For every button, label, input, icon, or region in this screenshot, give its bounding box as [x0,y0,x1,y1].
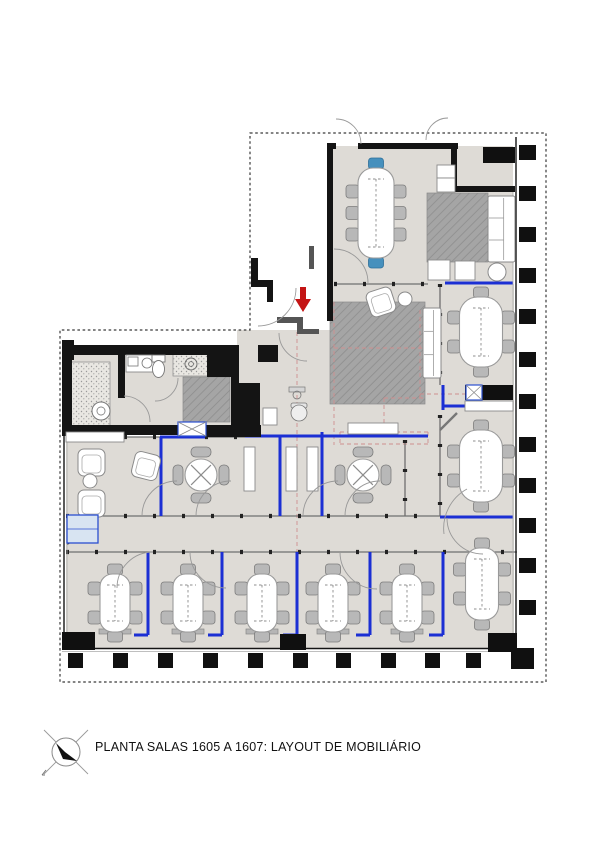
wall [62,352,72,436]
sink-basin [128,357,138,366]
chair [335,465,345,485]
chair [498,563,511,576]
north-arrow-icon [40,726,92,778]
chair [326,564,341,575]
sofa [423,308,441,378]
low-wall [309,246,314,269]
column [519,394,536,409]
cabinet-dark [62,632,95,650]
chair [235,611,248,624]
chair [181,564,196,575]
chair [369,158,384,169]
column [519,268,536,283]
chair [255,631,270,642]
chair [498,592,511,605]
chair [346,207,359,220]
chair [306,582,319,595]
cabinet-dark [488,633,517,652]
arrow-head [295,299,311,312]
rug [183,377,230,422]
column [519,437,536,452]
chair [161,582,174,595]
chair [88,611,101,624]
floor-plan [0,0,610,710]
cabinet [307,447,318,491]
chair [381,465,391,485]
chair [347,611,360,624]
chair [448,311,461,324]
side-table [83,474,97,488]
sofa-body [488,196,515,262]
chair [448,445,461,458]
architectural-drawing-sheet: PLANTA SALAS 1605 A 1607: LAYOUT DE MOBI… [0,0,610,862]
side-table [488,263,506,281]
floor-area [148,375,184,426]
chair [202,611,215,624]
chair [173,465,183,485]
wall [358,143,458,149]
drum-fixture [92,402,110,420]
chair-seat [291,405,307,421]
cabinet [263,408,277,425]
column [381,653,396,668]
chair [474,366,489,377]
chair [502,340,515,353]
drawing-title: PLANTA SALAS 1605 A 1607: LAYOUT DE MOBI… [95,740,421,754]
chair [474,287,489,298]
chair [448,340,461,353]
sofa-body [423,308,441,378]
column [293,653,308,668]
wall [207,350,234,377]
meeting-table [247,574,277,632]
chair [454,592,467,605]
column [519,478,536,493]
chair [326,631,341,642]
chair [129,611,142,624]
toilet-bowl [153,361,165,378]
chair [380,611,393,624]
entrance-arrow [295,287,311,312]
chair [393,228,406,241]
rug [427,193,488,262]
chair [421,582,434,595]
arrow-shaft [300,287,306,299]
column [519,352,536,367]
chair [235,582,248,595]
cabinet [244,447,255,491]
chair [346,185,359,198]
chair [346,228,359,241]
chair [475,619,490,630]
cabinet [437,165,455,178]
column [113,653,128,668]
column [158,653,173,668]
cabinet [465,401,513,411]
chair [400,564,415,575]
door-swing-arc [426,118,448,140]
title-block: PLANTA SALAS 1605 A 1607: LAYOUT DE MOBI… [0,724,610,784]
door-swing-arc [336,119,361,144]
chair [181,631,196,642]
chair [88,582,101,595]
chair [454,563,467,576]
wall [451,186,515,192]
wall [327,143,333,321]
side-table [398,292,412,306]
chair [108,631,123,642]
armchair-body [130,450,162,482]
office-chair [291,403,307,421]
chair [502,311,515,324]
cabinet-dark [483,147,515,163]
column [466,653,481,668]
chair [400,631,415,642]
armchair [130,450,162,482]
wall [118,353,125,398]
chair [502,445,515,458]
chair [474,501,489,512]
meeting-table [173,574,203,632]
column [519,558,536,573]
cabinet [66,432,124,442]
chair [191,447,211,457]
chair [502,474,515,487]
column [519,227,536,242]
column [519,186,536,201]
chair [369,257,384,268]
sink-bowl [142,358,152,368]
chair [380,582,393,595]
cabinet [437,178,455,192]
low-wall [302,329,319,334]
column [68,653,83,668]
rug [330,302,425,404]
column [203,653,218,668]
column [519,518,536,533]
column [519,600,536,615]
chair [129,582,142,595]
chair [255,564,270,575]
sofa [488,196,515,262]
chair [276,582,289,595]
textured-floor [173,354,208,376]
meeting-table [392,574,422,632]
chair [306,611,319,624]
column [248,653,263,668]
meeting-table [460,297,503,367]
chair [474,420,489,431]
chair [475,538,490,549]
meeting-table [100,574,130,632]
cabinet [455,261,475,280]
column [336,653,351,668]
chair [448,474,461,487]
column [519,309,536,324]
cabinet-dark [280,634,306,650]
meeting-table [318,574,348,632]
column [519,145,536,160]
chair [393,185,406,198]
wall [205,425,261,437]
chair [353,493,373,503]
chair [353,447,373,457]
chair [276,611,289,624]
armchair [78,449,105,476]
cabinet [348,423,398,434]
chair [393,207,406,220]
armchair [78,490,105,517]
wall [267,285,273,302]
chair [421,611,434,624]
wall [258,345,278,362]
column [425,653,440,668]
cabinet [286,447,297,491]
wall [231,345,239,387]
cabinet [428,260,450,280]
chair [161,611,174,624]
